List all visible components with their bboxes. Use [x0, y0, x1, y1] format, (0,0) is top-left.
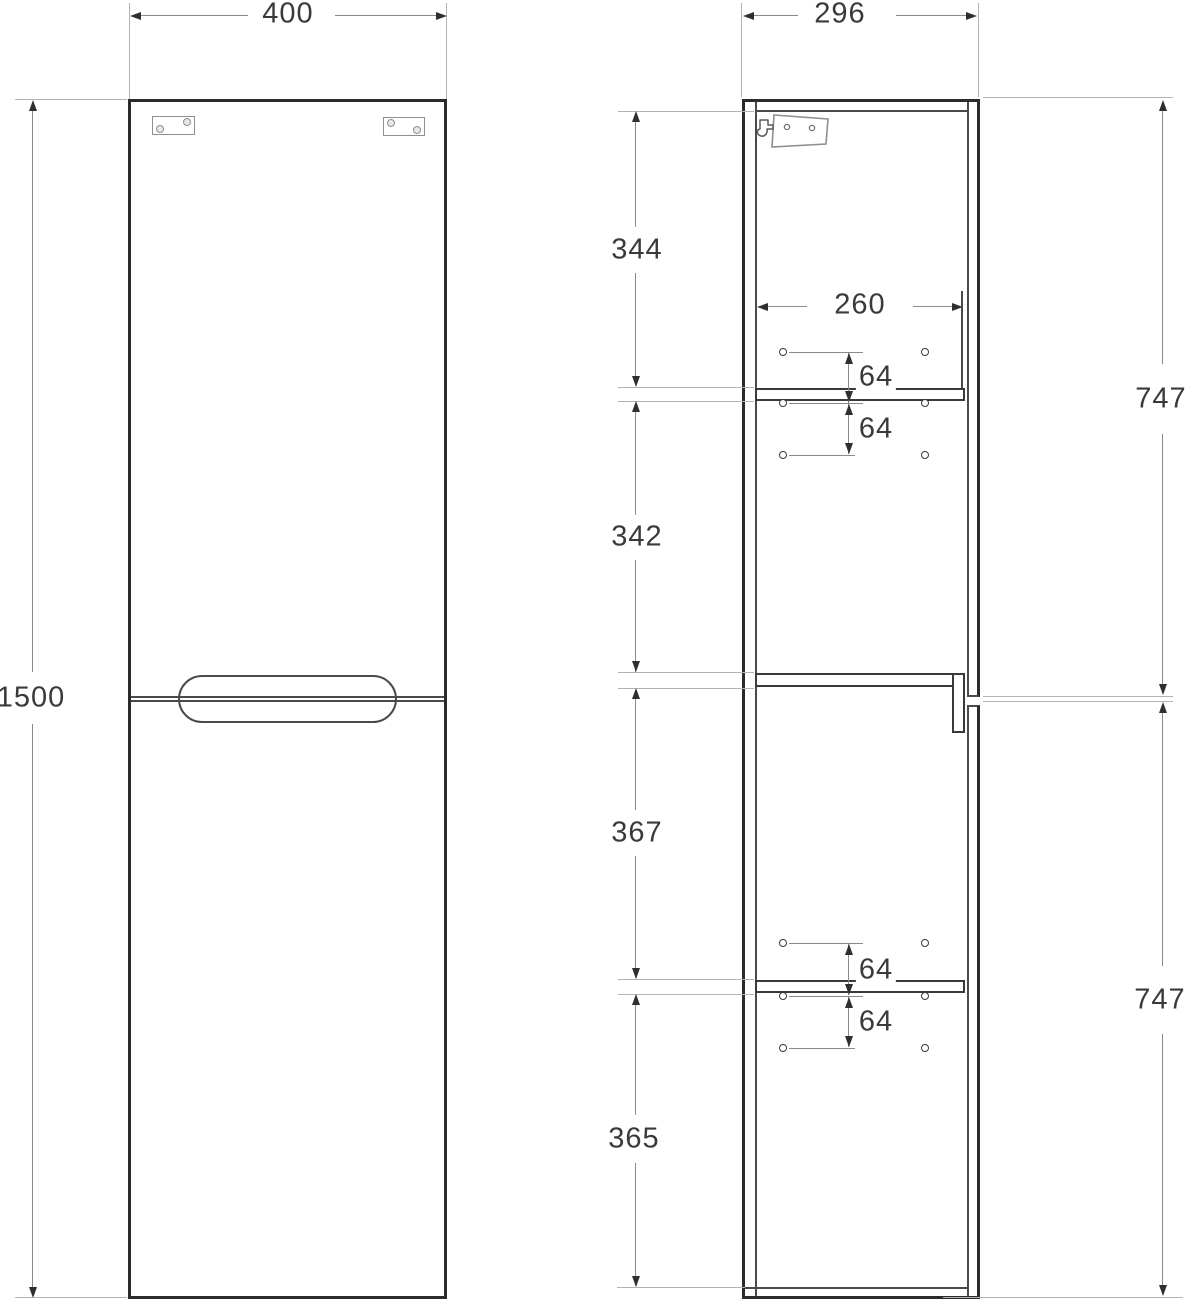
arrowhead-up-icon: [845, 944, 853, 955]
shelf-pin-hole-icon: [779, 939, 787, 947]
arrowhead-up-icon: [632, 401, 640, 412]
shelf-pin-hole-icon: [921, 992, 929, 1000]
dimension-line: [335, 15, 444, 16]
dim-label-front-width: 400: [259, 0, 316, 29]
dimension-line: [635, 273, 636, 383]
arrowhead-down-icon: [1159, 684, 1167, 695]
arrowhead-down-icon: [1159, 1285, 1167, 1296]
arrowhead-right-icon: [436, 12, 447, 20]
extension-line: [943, 1297, 1183, 1298]
dim-label-shelf-depth: 260: [831, 291, 888, 320]
dim-label-lower-shelf-to-bottom: 365: [605, 1125, 662, 1154]
shelf-pin-hole-icon: [779, 399, 787, 407]
arrowhead-down-icon: [29, 1287, 37, 1298]
back-panel-line: [755, 102, 757, 1296]
arrowhead-up-icon: [1159, 100, 1167, 111]
extension-line: [983, 97, 1173, 98]
dimension-line: [32, 724, 33, 1294]
dimension-line: [635, 692, 636, 810]
bracket-hole-icon: [784, 124, 789, 129]
dim-label-front-height: 1500: [0, 684, 68, 713]
shelf-pin-hole-icon: [779, 992, 787, 1000]
dimension-line: [635, 560, 636, 672]
extension-line: [618, 387, 754, 388]
upper-door-panel: [967, 102, 980, 697]
arrowhead-left-icon: [743, 12, 754, 20]
dim-label-shelf-to-divider: 342: [608, 523, 665, 552]
bracket-hole-icon: [809, 125, 814, 130]
extension-line: [741, 3, 742, 97]
dim-label-divider-to-lower-shelf: 367: [608, 819, 665, 848]
shelf-pin-hole-icon: [779, 451, 787, 459]
mid-divider-front-step: [952, 673, 965, 733]
arrowhead-down-icon: [845, 984, 853, 995]
dimension-line: [32, 104, 33, 672]
hinge-plate-icon: [152, 116, 195, 135]
shelf-pin-hole-icon: [779, 1044, 787, 1052]
hinge-plate-icon: [383, 117, 425, 136]
shelf-pin-hole-icon: [921, 451, 929, 459]
bracket-plate: [772, 115, 828, 147]
arrowhead-left-icon: [757, 303, 768, 311]
lower-door-panel: [967, 705, 980, 1296]
dim-label-hole-pitch: 64: [856, 363, 896, 392]
dimension-line: [133, 15, 248, 16]
hinge-pin-icon: [387, 119, 395, 127]
mid-divider: [755, 673, 954, 687]
hinge-pin-icon: [156, 125, 164, 133]
dim-label-hole-pitch: 64: [856, 956, 896, 985]
arrowhead-down-icon: [845, 391, 853, 402]
hanger-hook-icon: [752, 117, 776, 141]
extension-line: [978, 3, 979, 97]
extension-line: [618, 979, 754, 980]
arrowhead-up-icon: [845, 353, 853, 364]
dimension-line: [1162, 434, 1163, 692]
door-handle-outline: [178, 675, 397, 723]
arrowhead-left-icon: [130, 12, 141, 20]
hinge-pin-icon: [183, 118, 191, 126]
arrowhead-down-icon: [632, 968, 640, 979]
shelf-pin-hole-icon: [921, 939, 929, 947]
arrowhead-down-icon: [845, 1036, 853, 1047]
arrowhead-up-icon: [29, 100, 37, 111]
dimension-line: [1162, 708, 1163, 966]
dimension-line: [635, 405, 636, 515]
arrowhead-down-icon: [632, 1276, 640, 1287]
dim-label-top-to-shelf: 344: [608, 236, 665, 265]
arrowhead-up-icon: [845, 997, 853, 1008]
dimension-line: [635, 115, 636, 227]
arrowhead-up-icon: [632, 994, 640, 1005]
extension-line: [961, 291, 963, 388]
dimension-line: [1162, 104, 1163, 364]
dimension-line: [635, 856, 636, 978]
dimension-line: [896, 15, 974, 16]
extension-line: [983, 696, 1173, 697]
dimension-line: [635, 998, 636, 1115]
arrowhead-up-icon: [1159, 702, 1167, 713]
arrowhead-up-icon: [632, 688, 640, 699]
dimension-line: [1162, 1034, 1163, 1294]
arrowhead-down-icon: [845, 443, 853, 454]
dim-label-upper-door-height: 747: [1132, 385, 1185, 414]
shelf-pin-hole-icon: [921, 1044, 929, 1052]
side-cabinet-outline: [742, 99, 980, 1299]
wall-bracket-icon: [770, 110, 832, 156]
hole-leader-line: [789, 455, 855, 456]
hole-leader-line: [789, 1048, 855, 1049]
extension-line: [617, 1287, 745, 1288]
bottom-panel-inner-line: [745, 1287, 967, 1289]
arrowhead-up-icon: [845, 404, 853, 415]
extension-line: [618, 672, 754, 673]
arrowhead-up-icon: [632, 111, 640, 122]
extension-line: [983, 701, 1173, 702]
dim-label-side-depth: 296: [811, 0, 868, 29]
dim-label-lower-door-height: 747: [1131, 986, 1185, 1015]
hinge-pin-icon: [413, 126, 421, 134]
arrowhead-down-icon: [632, 376, 640, 387]
shelf-pin-hole-icon: [779, 348, 787, 356]
technical-drawing-canvas: 400 1500: [0, 0, 1185, 1303]
dim-label-hole-pitch: 64: [856, 415, 896, 444]
arrowhead-right-icon: [966, 12, 977, 20]
shelf-pin-hole-icon: [921, 348, 929, 356]
dim-label-hole-pitch: 64: [856, 1008, 896, 1037]
dimension-line: [635, 1163, 636, 1286]
hook-shape: [757, 120, 773, 136]
shelf-pin-hole-icon: [921, 399, 929, 407]
arrowhead-down-icon: [632, 661, 640, 672]
